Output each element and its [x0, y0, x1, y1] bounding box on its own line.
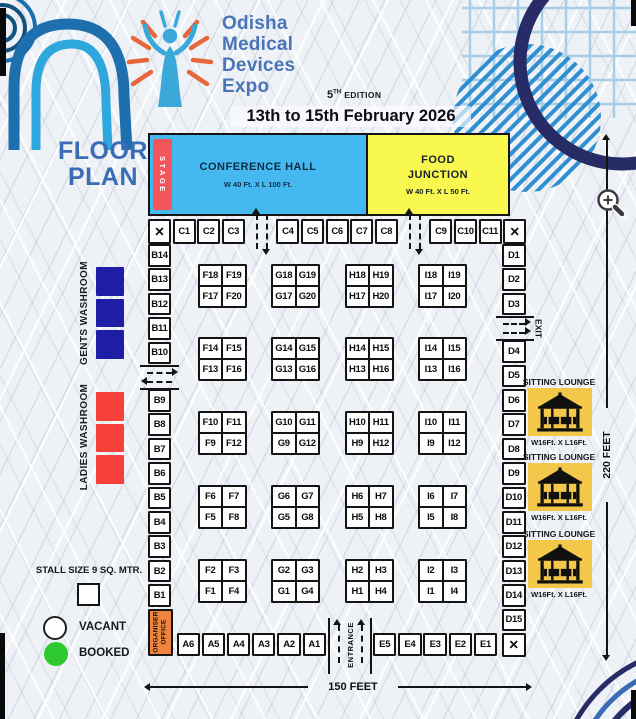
floor-plan-heading-line1: FLOOR	[53, 138, 153, 164]
title-line: Odisha	[222, 13, 295, 34]
width-dimension-line	[150, 686, 308, 688]
stall-D1: D1	[502, 244, 527, 267]
stall-H12: H12	[370, 434, 392, 453]
stall-D7: D7	[502, 413, 527, 436]
stall-G11: G11	[297, 413, 319, 432]
stall-F11: F11	[223, 413, 245, 432]
stall-block: H10H11H9H12	[345, 411, 394, 455]
floor-plan-heading: FLOOR PLAN	[53, 138, 153, 190]
entrance-wall	[370, 618, 372, 674]
stall-G19: G19	[297, 266, 319, 285]
no-stall-marker: ✕	[502, 633, 527, 657]
food-junction-area: FOOD JUNCTION W 40 Ft. X L 50 Ft.	[366, 133, 510, 216]
flow-arrowhead	[525, 327, 531, 335]
zoom-cursor-icon	[593, 186, 633, 226]
flow-dashed-line	[338, 625, 340, 663]
booked-legend-dot	[44, 642, 68, 666]
stall-F2: F2	[200, 561, 222, 580]
stall-F20: F20	[223, 287, 245, 306]
passage-wall	[140, 365, 179, 367]
stall-H5: H5	[347, 508, 369, 527]
flow-dashed-line	[147, 381, 172, 383]
stall-G9: G9	[273, 434, 295, 453]
stall-H14: H14	[347, 339, 369, 358]
stall-F9: F9	[200, 434, 222, 453]
edition-ordinal: TH	[333, 89, 341, 95]
stall-block: F14F15F13F16	[198, 337, 247, 381]
stall-block: G14G15G13G16	[271, 337, 320, 381]
stall-I18: I18	[420, 266, 442, 285]
dimension-arrowhead	[602, 134, 610, 140]
stall-C8: C8	[375, 219, 398, 244]
stall-C5: C5	[301, 219, 324, 244]
stall-H11: H11	[370, 413, 392, 432]
stall-G8: G8	[297, 508, 319, 527]
stall-H15: H15	[370, 339, 392, 358]
stall-I9: I9	[420, 434, 442, 453]
stall-C10: C10	[454, 219, 477, 244]
title-line: Devices	[222, 55, 295, 76]
ladies-washroom-square	[96, 424, 125, 453]
height-dimension-label: 220 FEET	[601, 425, 613, 485]
gents-washroom-square	[96, 267, 125, 296]
gazebo-icon	[534, 544, 586, 584]
stall-F18: F18	[200, 266, 222, 285]
conference-hall-label: CONFERENCE HALL	[188, 160, 328, 174]
stall-block: G10G11G9G12	[271, 411, 320, 455]
stall-A4: A4	[227, 633, 250, 657]
height-dimension-line	[606, 140, 608, 408]
flow-arrowhead	[333, 619, 341, 625]
sitting-lounge-area	[528, 463, 592, 511]
stall-B11: B11	[148, 317, 171, 340]
flow-dashed-line	[147, 372, 172, 374]
expo-title: Odisha Medical Devices Expo	[222, 13, 295, 97]
conference-hall-size: W 40 Ft. X L 100 Ft.	[224, 180, 292, 189]
stall-block: G6G7G5G8	[271, 485, 320, 529]
stall-H13: H13	[347, 360, 369, 379]
stall-I7: I7	[444, 487, 466, 506]
stall-B6: B6	[148, 462, 171, 485]
stall-D9: D9	[502, 462, 527, 485]
event-dates: 13th to 15th February 2026	[231, 106, 471, 127]
flow-arrowhead	[172, 368, 178, 376]
stall-G4: G4	[297, 582, 319, 601]
sitting-lounge-area	[528, 388, 592, 436]
stall-B12: B12	[148, 293, 171, 316]
stall-G12: G12	[297, 434, 319, 453]
edition-word: EDITION	[344, 90, 381, 100]
stall-H8: H8	[370, 508, 392, 527]
stall-C1: C1	[173, 219, 196, 244]
vacant-legend-label: VACANT	[79, 621, 126, 633]
flow-arrowhead	[262, 249, 270, 255]
stall-B1: B1	[148, 584, 171, 607]
stall-A5: A5	[202, 633, 225, 657]
vacant-legend-dot	[43, 616, 67, 640]
flow-arrowhead	[357, 619, 365, 625]
dimension-arrowhead	[144, 683, 150, 691]
stall-F1: F1	[200, 582, 222, 601]
stall-H10: H10	[347, 413, 369, 432]
stall-H16: H16	[370, 360, 392, 379]
flow-arrowhead	[252, 208, 260, 214]
stall-F16: F16	[223, 360, 245, 379]
stall-block: H18H19H17H20	[345, 264, 394, 308]
stall-size-sample-square	[77, 583, 100, 606]
sitting-lounge-size: W16Ft. X L16Ft.	[519, 513, 599, 522]
stall-F15: F15	[223, 339, 245, 358]
stall-I11: I11	[444, 413, 466, 432]
stall-I10: I10	[420, 413, 442, 432]
entrance-wall	[328, 618, 330, 674]
stall-I3: I3	[444, 561, 466, 580]
arch-decoration	[14, 24, 127, 150]
stall-I6: I6	[420, 487, 442, 506]
stall-B8: B8	[148, 413, 171, 436]
stall-C7: C7	[350, 219, 373, 244]
gents-washroom-label: GENTS WASHROOM	[78, 258, 90, 368]
flow-dashed-line	[419, 214, 421, 249]
no-stall-marker: ✕	[148, 219, 171, 244]
stall-F10: F10	[200, 413, 222, 432]
stall-H1: H1	[347, 582, 369, 601]
stall-block: G2G3G1G4	[271, 559, 320, 603]
stall-F3: F3	[223, 561, 245, 580]
stall-G2: G2	[273, 561, 295, 580]
flow-arrowhead	[525, 318, 531, 326]
stall-B14: B14	[148, 244, 171, 267]
stall-C9: C9	[429, 219, 452, 244]
stall-G1: G1	[273, 582, 295, 601]
stall-E3: E3	[423, 633, 446, 657]
stall-B3: B3	[148, 535, 171, 558]
stall-D15: D15	[502, 609, 527, 632]
stall-I8: I8	[444, 508, 466, 527]
stall-B7: B7	[148, 438, 171, 461]
expo-floorplan-poster: Odisha Medical Devices Expo 5TH EDITION …	[0, 0, 636, 719]
stall-I20: I20	[444, 287, 466, 306]
flow-arrowhead	[141, 377, 147, 385]
floor-plan-heading-line2: PLAN	[53, 164, 153, 190]
stall-size-note: STALL SIZE 9 SQ. MTR.	[18, 565, 160, 576]
stall-G6: G6	[273, 487, 295, 506]
stall-A1: A1	[303, 633, 326, 657]
flow-dashed-line	[361, 625, 363, 663]
stall-block: I2I3I1I4	[418, 559, 467, 603]
stall-F6: F6	[200, 487, 222, 506]
stall-block: F18F19F17F20	[198, 264, 247, 308]
stall-C4: C4	[276, 219, 299, 244]
stall-E1: E1	[474, 633, 497, 657]
stall-H4: H4	[370, 582, 392, 601]
stall-block: I18I19I17I20	[418, 264, 467, 308]
stall-I15: I15	[444, 339, 466, 358]
stall-F14: F14	[200, 339, 222, 358]
stall-D2: D2	[502, 268, 527, 291]
stall-F5: F5	[200, 508, 222, 527]
stall-B10: B10	[148, 342, 171, 365]
stall-F19: F19	[223, 266, 245, 285]
flow-arrowhead	[405, 208, 413, 214]
ladies-washroom-label: LADIES WASHROOM	[78, 382, 90, 492]
organiser-office-label: ORGANISER OFFICE	[152, 612, 168, 653]
gazebo-icon	[534, 467, 586, 507]
stall-F7: F7	[223, 487, 245, 506]
stall-block: F6F7F5F8	[198, 485, 247, 529]
title-line: Medical	[222, 34, 295, 55]
stall-G10: G10	[273, 413, 295, 432]
stall-D4: D4	[502, 340, 527, 363]
title-line: Expo	[222, 76, 295, 97]
stall-H6: H6	[347, 487, 369, 506]
stall-I19: I19	[444, 266, 466, 285]
stall-I1: I1	[420, 582, 442, 601]
stall-I5: I5	[420, 508, 442, 527]
dimension-arrowhead	[526, 683, 532, 691]
stall-G13: G13	[273, 360, 295, 379]
stall-F8: F8	[223, 508, 245, 527]
dimension-arrowhead	[602, 655, 610, 661]
stall-H3: H3	[370, 561, 392, 580]
flow-arrowhead	[415, 249, 423, 255]
stall-block: I10I11I9I12	[418, 411, 467, 455]
stall-F4: F4	[223, 582, 245, 601]
stall-B9: B9	[148, 389, 171, 412]
stall-block: H6H7H5H8	[345, 485, 394, 529]
stall-H19: H19	[370, 266, 392, 285]
gents-washroom-square	[96, 299, 125, 328]
stall-C6: C6	[326, 219, 349, 244]
no-stall-marker: ✕	[503, 219, 526, 244]
stall-E5: E5	[373, 633, 396, 657]
stall-G15: G15	[297, 339, 319, 358]
conference-hall-area: CONFERENCE HALL W 40 Ft. X L 100 Ft.	[148, 133, 368, 216]
stall-C11: C11	[479, 219, 502, 244]
stall-block: H14H15H13H16	[345, 337, 394, 381]
stall-I14: I14	[420, 339, 442, 358]
stall-D13: D13	[502, 560, 527, 583]
stall-C2: C2	[197, 219, 220, 244]
stall-I13: I13	[420, 360, 442, 379]
stage-label: STAGE	[153, 139, 172, 210]
stall-D10: D10	[502, 487, 527, 510]
sitting-lounge-title: SITTING LOUNGE	[519, 452, 599, 462]
stall-A2: A2	[277, 633, 300, 657]
stall-E2: E2	[449, 633, 472, 657]
stall-D6: D6	[502, 389, 527, 412]
stall-A3: A3	[252, 633, 275, 657]
booked-legend-label: BOOKED	[79, 647, 129, 659]
expo-logo	[123, 2, 221, 112]
stall-H20: H20	[370, 287, 392, 306]
stall-H17: H17	[347, 287, 369, 306]
gazebo-icon	[534, 392, 586, 432]
flow-dashed-line	[256, 214, 258, 249]
stall-G14: G14	[273, 339, 295, 358]
stall-H2: H2	[347, 561, 369, 580]
edition-label: 5TH EDITION	[327, 89, 381, 101]
stall-B5: B5	[148, 487, 171, 510]
stall-G17: G17	[273, 287, 295, 306]
ladies-washroom-square	[96, 455, 125, 484]
stall-F17: F17	[200, 287, 222, 306]
stall-H7: H7	[370, 487, 392, 506]
stall-H18: H18	[347, 266, 369, 285]
stall-G7: G7	[297, 487, 319, 506]
stall-I17: I17	[420, 287, 442, 306]
gents-washroom-square	[96, 330, 125, 359]
stall-B13: B13	[148, 268, 171, 291]
entrance-label: ENTRANCE	[345, 615, 355, 675]
sitting-lounge-title: SITTING LOUNGE	[519, 529, 599, 539]
stall-I4: I4	[444, 582, 466, 601]
height-dimension-line	[606, 502, 608, 655]
sitting-lounge-size: W16Ft. X L16Ft.	[519, 590, 599, 599]
ladies-washroom-square	[96, 392, 125, 421]
width-dimension-line	[398, 686, 526, 688]
stall-G20: G20	[297, 287, 319, 306]
stall-I12: I12	[444, 434, 466, 453]
stall-G18: G18	[273, 266, 295, 285]
sitting-lounge-area	[528, 540, 592, 588]
stall-block: F2F3F1F4	[198, 559, 247, 603]
stall-G5: G5	[273, 508, 295, 527]
stall-G16: G16	[297, 360, 319, 379]
food-junction-size: W 40 Ft. X L 50 Ft.	[406, 187, 470, 196]
stall-block: I14I15I13I16	[418, 337, 467, 381]
flow-dashed-line	[503, 323, 525, 325]
width-dimension-label: 150 FEET	[310, 680, 396, 693]
food-junction-label: FOOD JUNCTION	[393, 153, 483, 182]
stall-I16: I16	[444, 360, 466, 379]
flow-dashed-line	[503, 332, 525, 334]
exit-label: EXIT	[535, 314, 544, 342]
logo-rays-teal	[161, 12, 179, 26]
stall-block: G18G19G17G20	[271, 264, 320, 308]
stall-E4: E4	[398, 633, 421, 657]
logo-figure	[158, 29, 182, 107]
stall-A6: A6	[177, 633, 200, 657]
stall-G3: G3	[297, 561, 319, 580]
flow-dashed-line	[409, 214, 411, 249]
stall-I2: I2	[420, 561, 442, 580]
stall-D3: D3	[502, 293, 527, 316]
stall-C3: C3	[222, 219, 245, 244]
stall-block: I6I7I5I8	[418, 485, 467, 529]
organiser-office: ORGANISER OFFICE	[148, 609, 173, 657]
sitting-lounge-title: SITTING LOUNGE	[519, 377, 599, 387]
flow-dashed-line	[266, 214, 268, 249]
stall-F12: F12	[223, 434, 245, 453]
corner-arcs-decoration	[558, 648, 636, 719]
stall-H9: H9	[347, 434, 369, 453]
sitting-lounge-size: W16Ft. X L16Ft.	[519, 438, 599, 447]
stall-block: H2H3H1H4	[345, 559, 394, 603]
stall-F13: F13	[200, 360, 222, 379]
stall-block: F10F11F9F12	[198, 411, 247, 455]
stall-B4: B4	[148, 511, 171, 534]
